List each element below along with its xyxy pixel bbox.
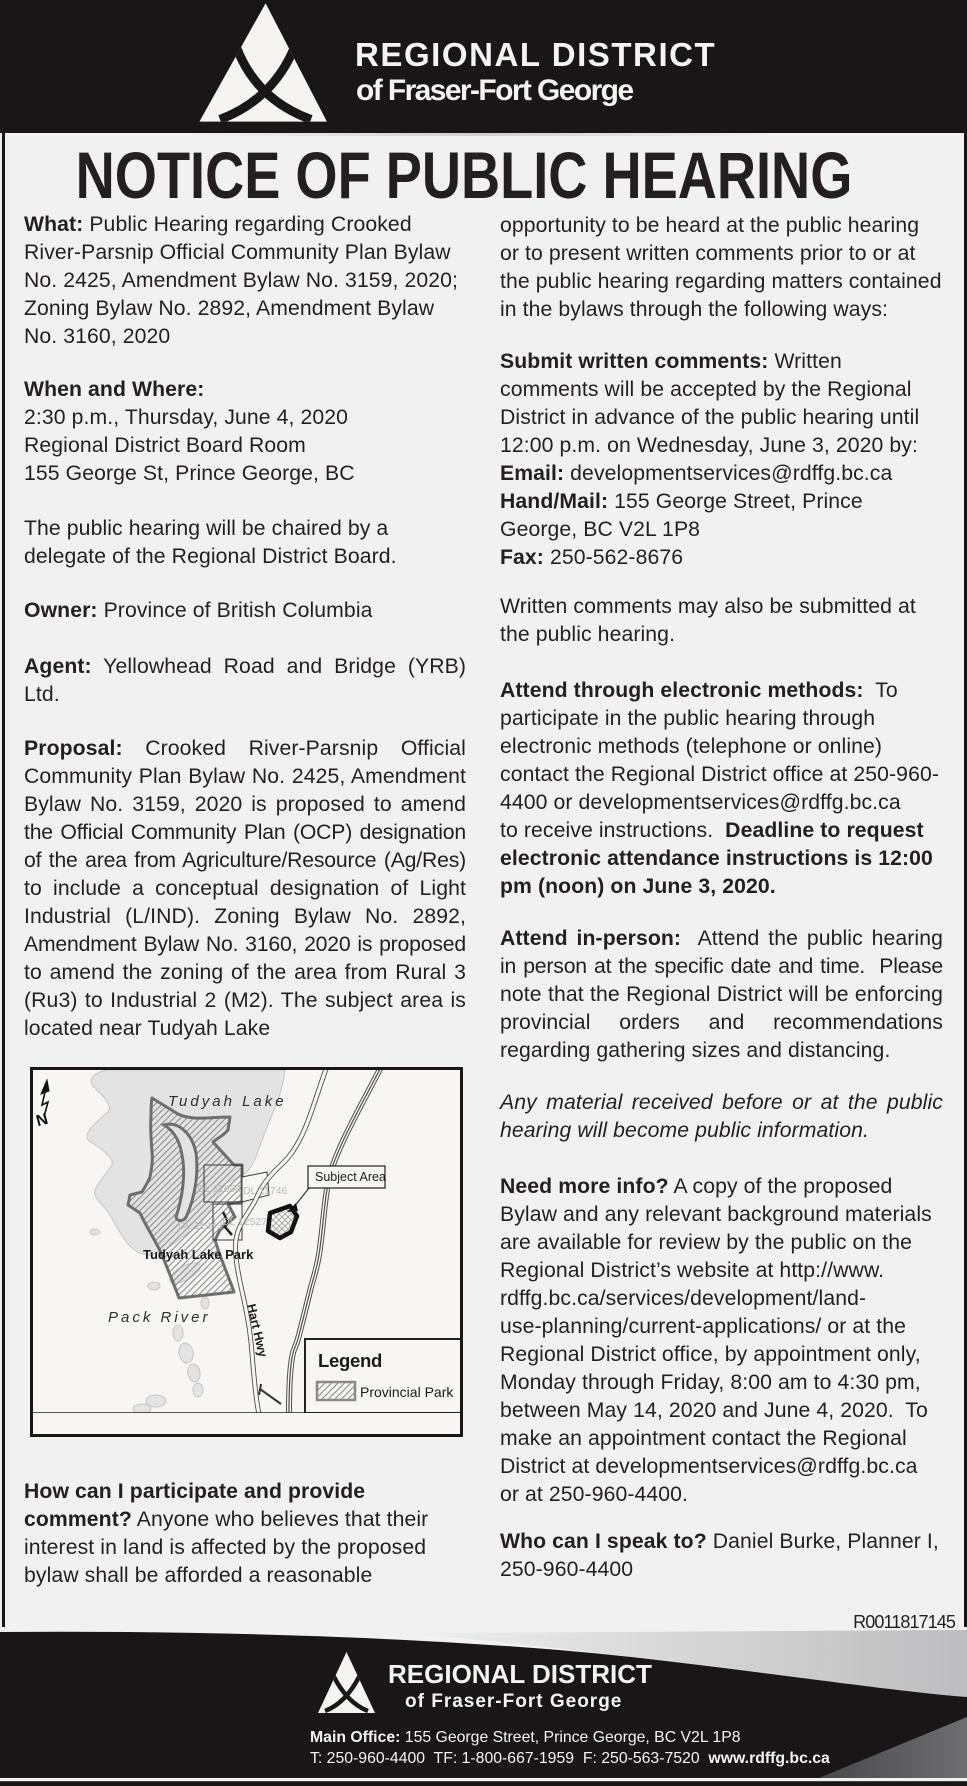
svg-text:Legend: Legend — [318, 1350, 382, 1371]
svg-text:Main Office: 155 George Street: Main Office: 155 George Street, Prince G… — [310, 1729, 741, 1746]
svg-text:T: 250-960-4400 TF: 1-800-667: T: 250-960-4400 TF: 1-800-667-1959 F: 25… — [310, 1750, 830, 1767]
svg-text:DL 11746: DL 11746 — [243, 1185, 288, 1197]
svg-text:DL 12527: DL 12527 — [222, 1216, 267, 1228]
svg-text:DL 11943: DL 11943 — [178, 1220, 223, 1232]
svg-text:Tudyah Lake Park: Tudyah Lake Park — [143, 1247, 254, 1262]
svg-text:Provincial Park: Provincial Park — [360, 1384, 454, 1400]
svg-text:DL 11604: DL 11604 — [197, 1183, 242, 1195]
svg-text:Tudyah Lake: Tudyah Lake — [168, 1093, 287, 1110]
svg-text:Pack River: Pack River — [108, 1309, 211, 1326]
svg-text:Subject Area: Subject Area — [315, 1170, 386, 1184]
svg-text:REGIONAL DISTRICT: REGIONAL DISTRICT — [388, 1659, 652, 1689]
svg-text:of Fraser-Fort George: of Fraser-Fort George — [405, 1691, 622, 1712]
